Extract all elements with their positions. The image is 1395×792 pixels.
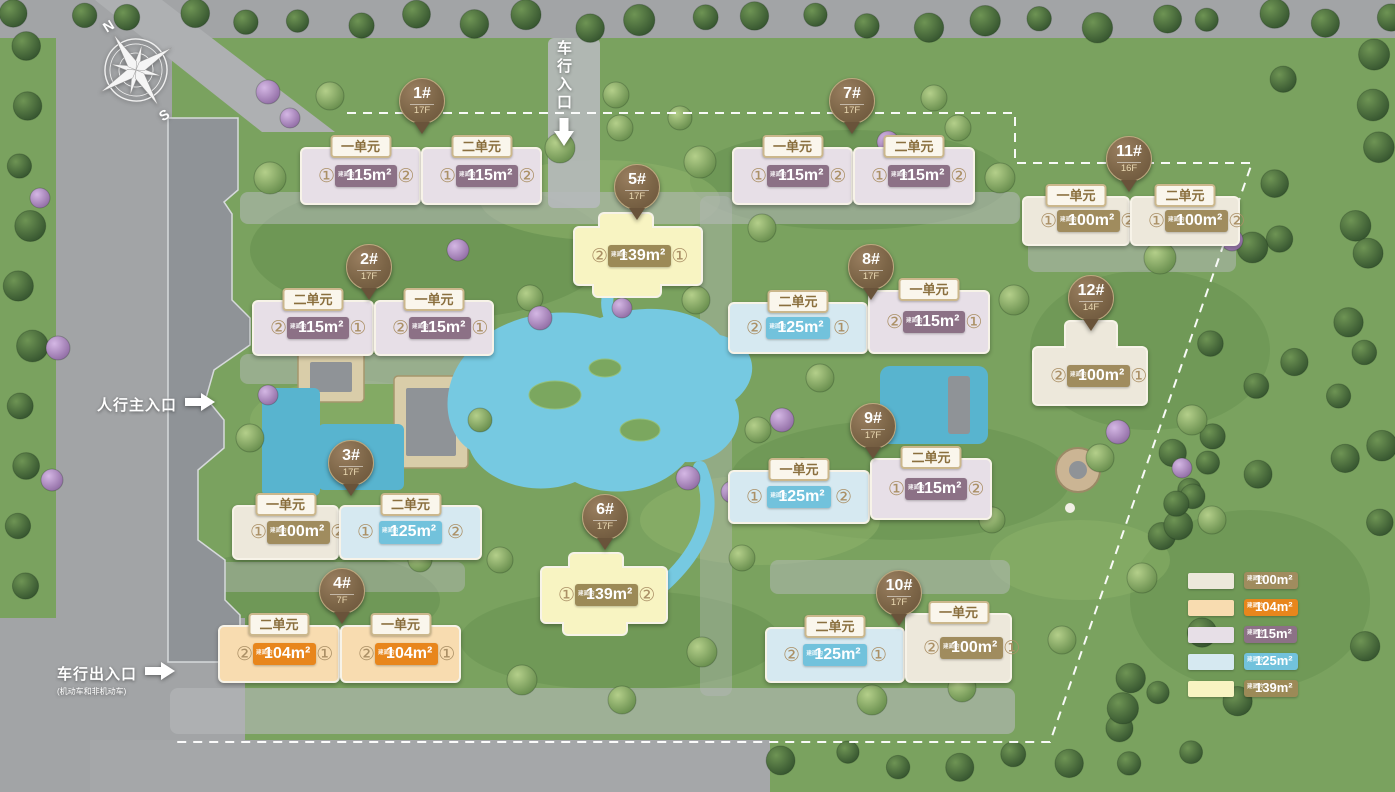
legend-swatch [1188, 681, 1234, 697]
unit-number-left: ② [270, 319, 287, 338]
building-8#-unit-card: 二单元②建面约125m²① [728, 302, 868, 354]
right-arrow-icon [185, 393, 215, 416]
unit-number-left: ① [357, 523, 374, 542]
building-number-label: 6# [596, 502, 614, 518]
building-marker-balloon: 8#17F [848, 244, 894, 290]
pedestrian-main-entrance-row: 人行主入口 [97, 393, 215, 416]
legend-swatch [1188, 654, 1234, 670]
unit-area-badge: 建面约100m² [1057, 210, 1120, 232]
pedestrian-main-entrance: 人行主入口 [97, 393, 215, 416]
building-marker-2#: 2#17F [346, 244, 392, 300]
unit-number-right: ① [965, 313, 982, 332]
unit-area-badge: 建面约100m² [1067, 365, 1130, 387]
unit-number-right: ② [397, 167, 414, 186]
unit-area-badge: 建面约104m² [375, 643, 438, 665]
building-marker-balloon: 10#17F [876, 570, 922, 616]
building-marker-balloon: 7#17F [829, 78, 875, 124]
area-prefix-label: 建面约 [382, 529, 389, 535]
area-prefix-label: 建面约 [769, 325, 776, 331]
vehicle-entrance: 车行入口 [553, 40, 574, 151]
building-5#-unit-card: ②建面约139m²① [573, 226, 703, 286]
building-1#-unit-card: 一单元①建面约115m²② [300, 147, 421, 205]
unit-number-left: ② [1050, 367, 1067, 386]
legend-area-badge: 建面约125m² [1244, 653, 1298, 670]
building-marker-balloon: 1#17F [399, 78, 445, 124]
unit-name-tag: 一单元 [370, 613, 431, 636]
building-marker-balloon: 3#17F [328, 440, 374, 486]
unit-name-tag: 二单元 [900, 446, 961, 469]
legend-swatch [1188, 573, 1234, 589]
unit-area-badge: 建面约125m² [767, 486, 830, 508]
marker-pointer [343, 484, 359, 496]
unit-name-tag: 一单元 [768, 458, 829, 481]
legend-area-badge: 建面约104m² [1244, 599, 1298, 616]
building-11#-unit-card: 二单元①建面约100m²② [1130, 196, 1240, 246]
legend-area-badge: 建面约115m² [1244, 626, 1297, 643]
unit-name-tag: 一单元 [762, 135, 823, 158]
building-marker-balloon: 6#17F [582, 494, 628, 540]
unit-number-right: ② [950, 167, 967, 186]
building-footprint-bump [562, 622, 628, 636]
unit-area-badge: 建面约139m² [575, 584, 638, 606]
area-prefix-label: 建面约 [1070, 373, 1077, 379]
unit-number-right: ① [438, 645, 455, 664]
building-number-label: 4# [333, 576, 351, 592]
unit-area-badge: 建面约115m² [335, 165, 397, 187]
marker-pointer [844, 122, 860, 134]
building-10#-unit-card: 二单元②建面约125m²① [765, 627, 905, 683]
unit-name-tag: 二单元 [380, 493, 441, 516]
area-prefix-label: 建面约 [943, 645, 950, 651]
unit-area-badge: 建面约100m² [267, 521, 330, 543]
unit-number-left: ① [888, 480, 905, 499]
vehicle-exit-entrance-row: 车行出入口 [57, 662, 175, 685]
unit-number-right: ① [833, 319, 850, 338]
building-floors-label: 16F [1121, 164, 1137, 174]
building-marker-8#: 8#17F [848, 244, 894, 300]
pedestrian-main-entrance-wrap: 人行主入口 [97, 393, 215, 416]
building-number-label: 8# [862, 252, 880, 268]
unit-number-right: ① [316, 645, 333, 664]
unit-area-badge: 建面约139m² [608, 245, 671, 267]
unit-number-right: ② [1228, 212, 1245, 231]
building-9#-unit-card: 一单元①建面约125m²② [728, 470, 870, 524]
area-prefix-label: 建面约 [908, 486, 915, 492]
unit-number-right: ① [870, 646, 887, 665]
building-4#-unit-card: 二单元②建面约104m²① [218, 625, 340, 683]
unit-name-tag: 二单元 [248, 613, 309, 636]
building-number-label: 5# [628, 172, 646, 188]
building-marker-5#: 5#17F [614, 164, 660, 220]
building-marker-balloon: 5#17F [614, 164, 660, 210]
unit-number-right: ② [638, 586, 655, 605]
vehicle-exit-entrance-wrap: 车行出入口(机动车和非机动车) [57, 662, 175, 697]
area-prefix-label: 建面约 [412, 325, 419, 331]
unit-number-right: ② [447, 523, 464, 542]
building-2#-unit-card: 一单元②建面约115m²① [374, 300, 494, 356]
building-marker-balloon: 11#16F [1106, 136, 1152, 182]
area-prefix-label: 建面约 [770, 173, 777, 179]
building-marker-balloon: 4#7F [319, 568, 365, 614]
building-floors-label: 17F [414, 106, 430, 116]
building-3#-unit-card: 一单元①建面约100m²② [232, 505, 339, 560]
down-arrow-icon [554, 118, 574, 151]
unit-area-badge: 建面约125m² [803, 644, 866, 666]
building-marker-1#: 1#17F [399, 78, 445, 134]
unit-info-row: ②建面约100m²① [1034, 348, 1146, 404]
building-floors-label: 7F [336, 596, 347, 606]
area-prefix-label: 建面约 [256, 651, 263, 657]
unit-number-right: ② [829, 167, 846, 186]
area-prefix-label: 建面约 [1247, 658, 1254, 664]
unit-info-row: ①建面约139m²② [542, 568, 666, 622]
unit-name-tag: 二单元 [282, 288, 343, 311]
unit-number-right: ① [471, 319, 488, 338]
marker-pointer [1121, 180, 1137, 192]
unit-number-left: ② [746, 319, 763, 338]
area-prefix-label: 建面约 [270, 529, 277, 535]
unit-number-left: ① [439, 167, 456, 186]
area-prefix-label: 建面约 [378, 651, 385, 657]
unit-area-badge: 建面约115m² [905, 478, 967, 500]
legend-item-104: 建面约104m² [1188, 599, 1298, 616]
area-prefix-label: 建面约 [1060, 218, 1067, 224]
building-2#-unit-card: 二单元②建面约115m²① [252, 300, 374, 356]
residential-site-plan: N S 车行入口人行主入口车行出入口(机动车和非机动车) 一单元①建面约115m… [0, 0, 1395, 792]
building-number-label: 12# [1078, 283, 1105, 299]
legend-item-100: 建面约100m² [1188, 572, 1298, 589]
vehicle-exit-entrance-sublabel: (机动车和非机动车) [57, 686, 175, 697]
building-floors-label: 17F [361, 272, 377, 282]
area-prefix-label: 建面约 [459, 173, 466, 179]
area-prefix-label: 建面约 [1168, 218, 1175, 224]
right-arrow-icon [145, 662, 175, 685]
unit-area-badge: 建面约125m² [379, 521, 442, 543]
unit-name-tag: 一单元 [1045, 184, 1106, 207]
unit-number-left: ② [783, 646, 800, 665]
building-marker-7#: 7#17F [829, 78, 875, 134]
building-9#-unit-card: 二单元①建面约115m²② [870, 458, 992, 520]
area-prefix-label: 建面约 [338, 173, 345, 179]
building-marker-balloon: 12#14F [1068, 275, 1114, 321]
building-7#-unit-card: 一单元①建面约115m²② [732, 147, 853, 205]
unit-name-tag: 二单元 [883, 135, 944, 158]
vehicle-entrance-label: 车行入口 [553, 40, 574, 112]
unit-name-tag: 二单元 [767, 290, 828, 313]
vehicle-exit-entrance: 车行出入口(机动车和非机动车) [57, 662, 175, 697]
unit-name-tag: 一单元 [330, 135, 391, 158]
unit-number-right: ① [671, 247, 688, 266]
building-11#-unit-card: 一单元①建面约100m²② [1022, 196, 1130, 246]
unit-number-left: ① [871, 167, 888, 186]
unit-name-tag: 二单元 [451, 135, 512, 158]
marker-pointer [334, 612, 350, 624]
building-floors-label: 17F [629, 192, 645, 202]
legend-area-badge: 建面约139m² [1244, 680, 1298, 697]
marker-pointer [597, 538, 613, 550]
building-marker-3#: 3#17F [328, 440, 374, 496]
unit-number-left: ② [392, 319, 409, 338]
building-floors-label: 17F [343, 468, 359, 478]
vehicle-exit-entrance-label: 车行出入口 [57, 663, 137, 684]
building-marker-12#: 12#14F [1068, 275, 1114, 331]
marker-pointer [629, 208, 645, 220]
unit-area-badge: 建面约115m² [903, 311, 965, 333]
area-legend: 建面约100m²建面约104m²建面约115m²建面约125m²建面约139m² [1188, 572, 1298, 707]
unit-number-left: ② [358, 645, 375, 664]
marker-pointer [865, 447, 881, 459]
legend-item-139: 建面约139m² [1188, 680, 1298, 697]
building-floors-label: 17F [863, 272, 879, 282]
unit-area-badge: 建面约100m² [940, 637, 1003, 659]
building-marker-10#: 10#17F [876, 570, 922, 626]
unit-number-left: ① [1148, 212, 1165, 231]
building-floors-label: 14F [1083, 303, 1099, 313]
unit-info-row: ②建面约115m²① [870, 292, 988, 352]
unit-area-badge: 建面约115m² [287, 317, 349, 339]
unit-number-right: ① [1003, 639, 1020, 658]
unit-area-badge: 建面约115m² [767, 165, 829, 187]
unit-area-badge: 建面约115m² [409, 317, 471, 339]
building-1#-unit-card: 二单元①建面约115m²② [421, 147, 542, 205]
building-floors-label: 17F [597, 522, 613, 532]
marker-pointer [863, 288, 879, 300]
unit-area-badge: 建面约100m² [1165, 210, 1228, 232]
legend-item-115: 建面约115m² [1188, 626, 1298, 643]
unit-number-right: ① [1130, 367, 1147, 386]
area-prefix-label: 建面约 [1247, 604, 1254, 610]
legend-swatch [1188, 627, 1234, 643]
building-footprint-bump [592, 284, 662, 298]
unit-number-right: ② [967, 480, 984, 499]
building-marker-11#: 11#16F [1106, 136, 1152, 192]
building-marker-balloon: 2#17F [346, 244, 392, 290]
unit-name-tag: 一单元 [255, 493, 316, 516]
unit-info-row: ②建面约139m²① [575, 228, 701, 284]
building-floors-label: 17F [844, 106, 860, 116]
unit-number-left: ② [236, 645, 253, 664]
unit-area-badge: 建面约104m² [253, 643, 316, 665]
area-prefix-label: 建面约 [611, 253, 618, 259]
building-marker-4#: 4#7F [319, 568, 365, 624]
building-marker-6#: 6#17F [582, 494, 628, 550]
building-number-label: 2# [360, 252, 378, 268]
unit-number-right: ② [835, 488, 852, 507]
area-prefix-label: 建面约 [806, 652, 813, 658]
unit-area-badge: 建面约125m² [766, 317, 829, 339]
unit-area-badge: 建面约115m² [456, 165, 518, 187]
marker-pointer [1083, 319, 1099, 331]
area-prefix-label: 建面约 [891, 173, 898, 179]
legend-swatch [1188, 600, 1234, 616]
building-marker-balloon: 9#17F [850, 403, 896, 449]
building-floors-label: 17F [865, 431, 881, 441]
building-number-label: 9# [864, 411, 882, 427]
unit-number-left: ① [1040, 212, 1057, 231]
area-prefix-label: 建面约 [1247, 577, 1254, 583]
unit-name-tag: 一单元 [403, 288, 464, 311]
unit-number-left: ② [886, 313, 903, 332]
unit-number-left: ② [923, 639, 940, 658]
compass-south-label: S [156, 106, 172, 125]
marker-pointer [414, 122, 430, 134]
marker-pointer [891, 614, 907, 626]
unit-name-tag: 一单元 [898, 278, 959, 301]
area-prefix-label: 建面约 [770, 494, 777, 500]
building-number-label: 3# [342, 448, 360, 464]
area-prefix-label: 建面约 [1247, 631, 1254, 637]
building-7#-unit-card: 二单元①建面约115m²② [853, 147, 975, 205]
marker-pointer [361, 288, 377, 300]
compass-north-label: N [100, 16, 117, 35]
unit-number-left: ① [250, 523, 267, 542]
area-prefix-label: 建面约 [1247, 685, 1254, 691]
area-prefix-label: 建面约 [290, 325, 297, 331]
unit-number-right: ② [518, 167, 535, 186]
unit-info-row: ②建面约100m²① [907, 615, 1010, 681]
unit-number-left: ① [558, 586, 575, 605]
unit-name-tag: 一单元 [928, 601, 989, 624]
building-number-label: 1# [413, 86, 431, 102]
pedestrian-main-entrance-label: 人行主入口 [97, 394, 177, 415]
unit-name-tag: 二单元 [1154, 184, 1215, 207]
unit-number-left: ① [746, 488, 763, 507]
area-prefix-label: 建面约 [906, 319, 913, 325]
building-marker-9#: 9#17F [850, 403, 896, 459]
legend-item-125: 建面约125m² [1188, 653, 1298, 670]
unit-area-badge: 建面约115m² [888, 165, 950, 187]
legend-area-badge: 建面约100m² [1244, 572, 1298, 589]
compass-rose: N S [78, 8, 194, 128]
building-number-label: 7# [843, 86, 861, 102]
unit-name-tag: 二单元 [804, 615, 865, 638]
building-6#-unit-card: ①建面约139m²② [540, 566, 668, 624]
unit-number-left: ① [750, 167, 767, 186]
building-number-label: 10# [886, 578, 913, 594]
building-footprint-bump [568, 552, 624, 568]
building-12#-unit-card: ②建面约100m²① [1032, 346, 1148, 406]
building-floors-label: 17F [891, 598, 907, 608]
building-4#-unit-card: 一单元②建面约104m²① [340, 625, 461, 683]
unit-number-left: ① [318, 167, 335, 186]
building-3#-unit-card: 二单元①建面约125m²② [339, 505, 482, 560]
unit-number-left: ② [591, 247, 608, 266]
area-prefix-label: 建面约 [578, 592, 585, 598]
unit-number-right: ① [349, 319, 366, 338]
building-number-label: 11# [1116, 144, 1142, 160]
